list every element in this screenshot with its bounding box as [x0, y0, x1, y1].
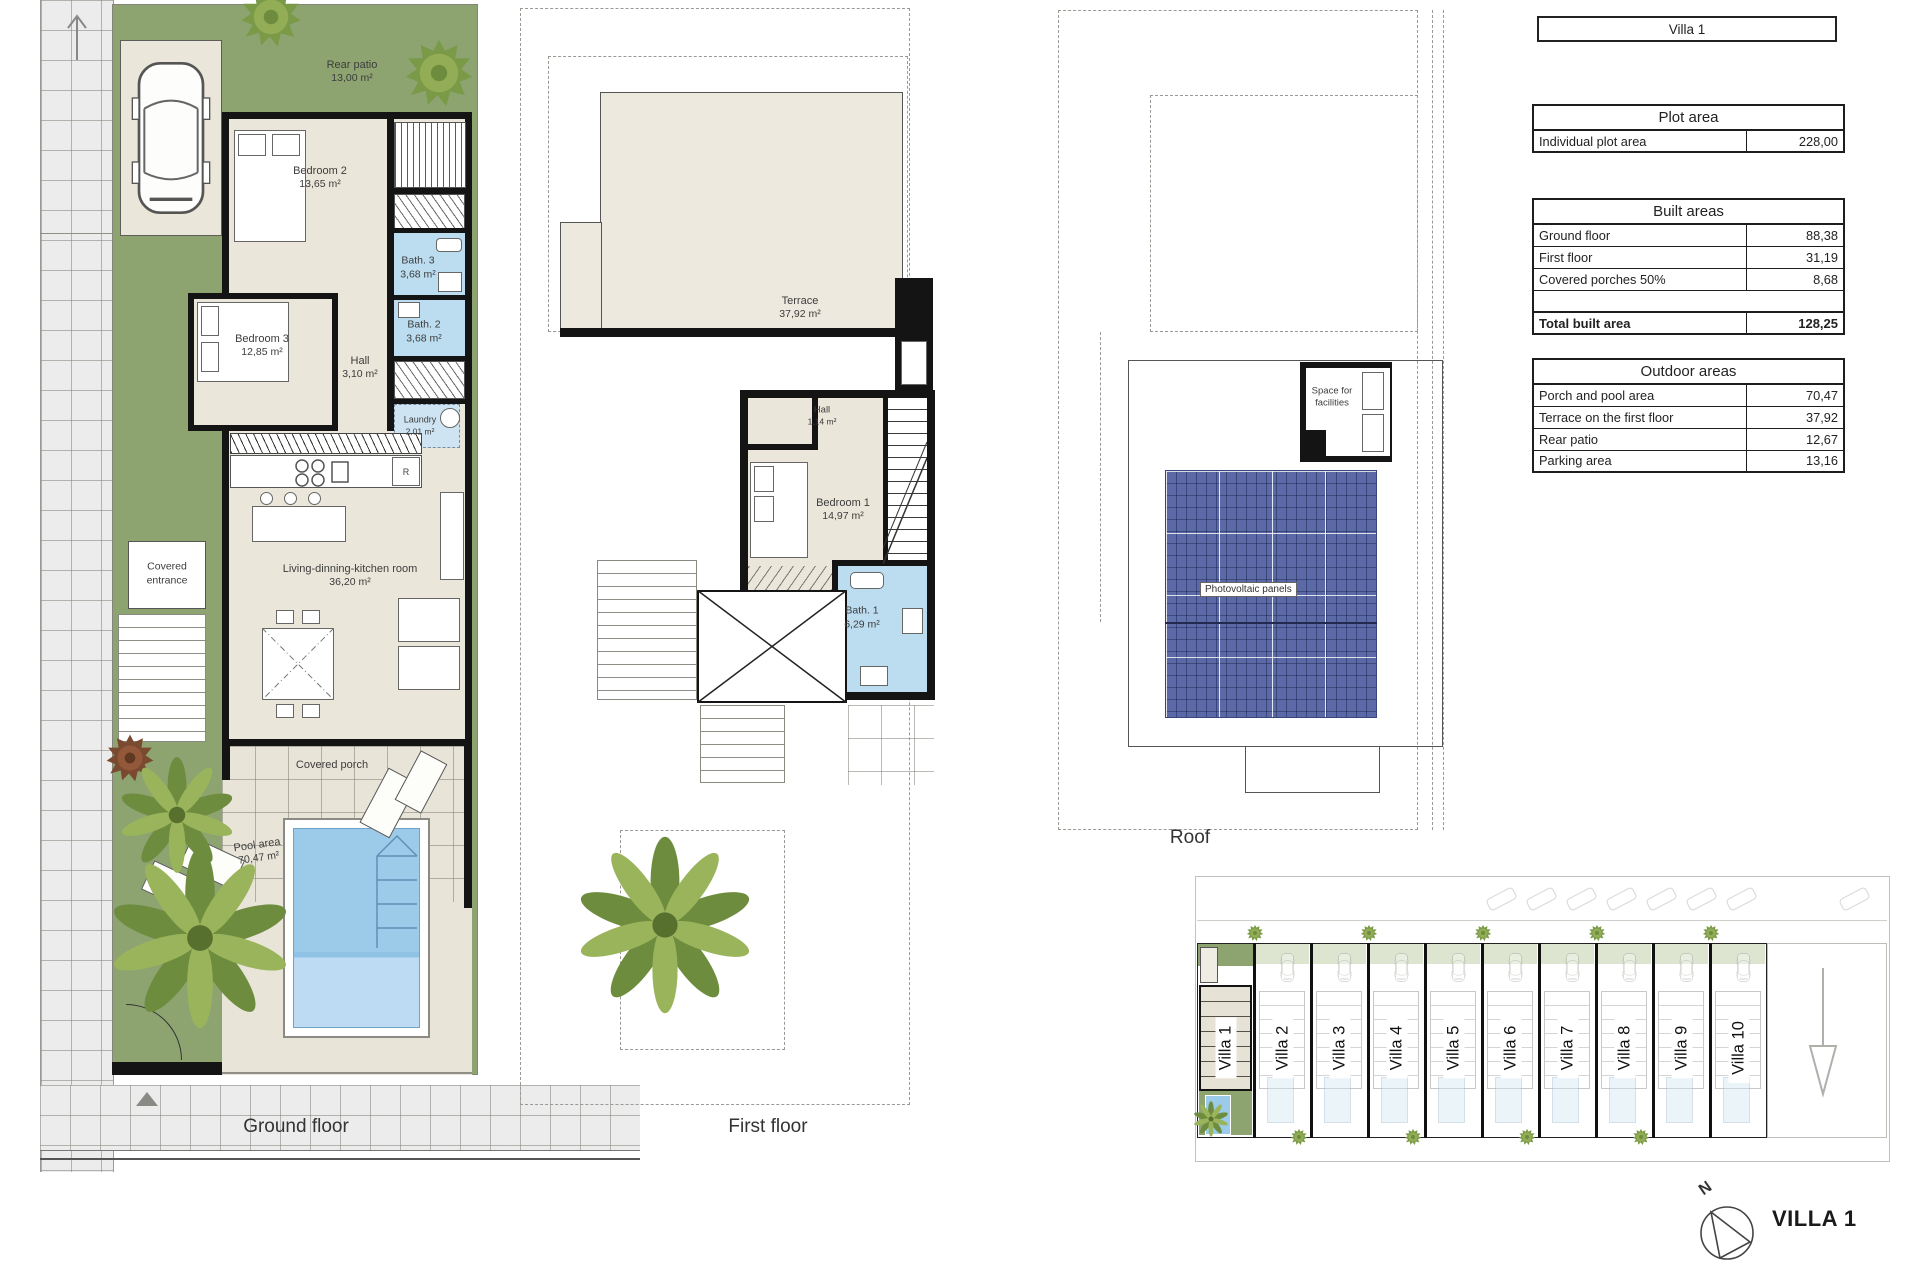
parked-car-outline — [1485, 886, 1518, 912]
row-label: Ground floor — [1533, 224, 1746, 246]
row-label: Parking area — [1533, 450, 1746, 472]
table-row-total: Total built area 128,25 — [1533, 312, 1844, 334]
room-label-laundry: Laundry 2,01 m² — [404, 415, 437, 438]
row-value: 13,16 — [1746, 450, 1844, 472]
car-icon — [1337, 951, 1352, 984]
parked-car-outline — [1725, 886, 1758, 912]
room-area: 1,14 m² — [808, 417, 837, 428]
mini-building — [1715, 991, 1761, 1089]
row-value: 12,67 — [1746, 428, 1844, 450]
bed-pillow — [201, 342, 219, 372]
room-area: 14,97 m² — [816, 510, 870, 524]
mini-pool — [1552, 1077, 1579, 1123]
mini-garden — [1654, 944, 1708, 964]
up-arrow-icon — [62, 10, 92, 64]
palm-tree-icon — [108, 846, 292, 1030]
room-label-bedroom2: Bedroom 2 13,65 m² — [293, 164, 347, 192]
car-icon — [131, 50, 211, 226]
room-name: Laundry — [404, 415, 437, 427]
mini-pool — [1324, 1077, 1351, 1123]
mini-garden — [1540, 944, 1594, 964]
room-name: Bedroom 1 — [816, 496, 870, 510]
site-top-line — [1197, 920, 1887, 921]
sheet-title: VILLA 1 — [1772, 1206, 1857, 1232]
bed-pillow — [754, 496, 774, 522]
row-label — [1533, 290, 1746, 312]
row-label: Porch and pool area — [1533, 384, 1746, 406]
wall — [394, 228, 466, 233]
palm-tree-icon — [575, 835, 755, 1015]
bidet — [860, 666, 888, 686]
site-villa-label: Villa 5 — [1443, 1018, 1464, 1079]
table-row: First floor 31,19 — [1533, 246, 1844, 268]
room-name-line2: facilities — [1312, 398, 1353, 410]
room-label-bath2: Bath. 2 3,68 m² — [406, 318, 442, 345]
deck-edge — [222, 1072, 472, 1074]
row-value: 70,47 — [1746, 384, 1844, 406]
row-value: 88,38 — [1746, 224, 1844, 246]
car-icon — [1280, 951, 1295, 984]
car-icon — [1394, 951, 1409, 984]
room-name-line2: entrance — [147, 574, 188, 588]
mini-pool — [1381, 1077, 1408, 1123]
row-value — [1746, 290, 1844, 312]
room-area: 6,29 m² — [844, 618, 880, 632]
site-villa-strip-5: Villa 5 — [1425, 943, 1482, 1138]
room-label-bath3: Bath. 3 3,68 m² — [400, 254, 436, 281]
caption-roof: Roof — [1170, 827, 1210, 849]
site-villa-strip-9: Villa 9 — [1653, 943, 1710, 1138]
room-area: 36,20 m² — [283, 576, 418, 590]
parked-car-outline — [1645, 886, 1678, 912]
site-villa-strip-1: Villa 1 — [1197, 943, 1254, 1138]
tree-icon — [1474, 924, 1492, 942]
street-line — [40, 1158, 640, 1160]
mini-pool — [1267, 1077, 1294, 1123]
site-villa-strip-10: Villa 10 — [1710, 943, 1767, 1138]
table-row: Covered porches 50% 8,68 — [1533, 268, 1844, 290]
sink — [850, 572, 884, 589]
car-icon — [1736, 951, 1751, 984]
parked-car-outline — [1525, 886, 1558, 912]
road-arrow-icon — [1808, 968, 1838, 1098]
built-areas-table: Built areas Ground floor 88,38 First flo… — [1532, 198, 1845, 335]
parked-car-outline — [1565, 886, 1598, 912]
table-row: Terrace on the first floor 37,92 — [1533, 406, 1844, 428]
room-name: Bedroom 2 — [293, 164, 347, 178]
row-value: 128,25 — [1746, 312, 1844, 334]
room-name-line1: Covered — [147, 560, 188, 574]
room-name: Hall — [808, 404, 837, 416]
room-name: Bedroom 3 — [235, 332, 289, 346]
site-villa-strip-7: Villa 7 — [1539, 943, 1596, 1138]
room-area: 13,65 m² — [293, 178, 347, 192]
wall — [394, 295, 466, 300]
v1-garden — [1198, 944, 1253, 966]
table-row: Rear patio 12,67 — [1533, 428, 1844, 450]
mini-building — [1316, 991, 1362, 1089]
strip-divider — [1367, 943, 1370, 1138]
site-boundary — [1195, 876, 1890, 1162]
bed-pillow — [272, 134, 300, 156]
room-label-bedroom3: Bedroom 3 12,85 m² — [235, 332, 289, 360]
strip-divider — [1595, 943, 1598, 1138]
parked-car-outline — [1838, 886, 1871, 912]
site-villa-strip-2: Villa 2 — [1254, 943, 1311, 1138]
tree-icon — [1290, 1128, 1308, 1146]
room-area: 3,68 m² — [406, 332, 442, 346]
table-row: Parking area 13,16 — [1533, 450, 1844, 472]
toilet — [438, 272, 462, 292]
strip-divider — [1424, 943, 1427, 1138]
room-area: 12,85 m² — [235, 346, 289, 360]
mini-building — [1658, 991, 1704, 1089]
site-villa-label: Villa 8 — [1614, 1018, 1635, 1079]
table-diagonals — [262, 628, 334, 700]
compass-icon — [1698, 1200, 1760, 1262]
first-floor-plan: Terrace 37,92 m² Hall 1,14 m² Bedroom 1 … — [500, 0, 950, 1180]
row-label: Rear patio — [1533, 428, 1746, 450]
site-villa-label: Villa 10 — [1728, 1013, 1749, 1083]
row-value: 31,19 — [1746, 246, 1844, 268]
wall — [394, 188, 466, 194]
wall — [394, 356, 466, 361]
chair — [276, 610, 294, 624]
car-icon — [1622, 951, 1637, 984]
room-label-facilities: Space for facilities — [1312, 386, 1353, 411]
facility-vent — [1362, 414, 1384, 452]
tree-icon — [1632, 1128, 1650, 1146]
pool-ladder-icon — [373, 830, 421, 950]
terrace-ext — [560, 222, 602, 335]
room-name: Bath. 2 — [406, 318, 442, 332]
table-row: Individual plot area 228,00 — [1533, 130, 1844, 152]
tree-icon — [1518, 1128, 1536, 1146]
strip-divider — [1652, 943, 1655, 1138]
mini-building — [1259, 991, 1305, 1089]
room-area: 3,10 m² — [342, 368, 378, 382]
tree-icon — [1404, 1128, 1422, 1146]
mini-building — [1544, 991, 1590, 1089]
mini-building — [1430, 991, 1476, 1089]
kitchen-shelf-hatch — [230, 433, 422, 454]
plot-area-title: Plot area — [1533, 105, 1844, 130]
wall — [394, 399, 466, 404]
car-icon — [1451, 951, 1466, 984]
entrance-triangle-icon — [136, 1092, 158, 1106]
mini-pool — [1438, 1077, 1465, 1123]
shower — [394, 361, 465, 399]
toilet — [902, 608, 923, 634]
outdoor-areas-title: Outdoor areas — [1533, 359, 1844, 384]
wardrobe — [394, 122, 466, 188]
row-label: Terrace on the first floor — [1533, 406, 1746, 428]
strip-divider — [1310, 943, 1313, 1138]
wall — [748, 444, 818, 450]
room-name: Bath. 1 — [844, 604, 880, 618]
car-icon — [1679, 951, 1694, 984]
porch-below — [848, 705, 934, 785]
mini-pool — [1666, 1077, 1693, 1123]
car-icon — [1565, 951, 1580, 984]
room-label-hall-gf: Hall 3,10 m² — [342, 354, 378, 382]
room-label-hall-ff: Hall 1,14 m² — [808, 404, 837, 427]
caption-ground-floor: Ground floor — [243, 1116, 349, 1138]
tree-icon — [1246, 924, 1264, 942]
roof-step-outline — [1245, 747, 1380, 793]
stool — [308, 492, 321, 505]
mini-garden — [1255, 944, 1309, 964]
palm-tree-icon — [1193, 1101, 1229, 1137]
bed-pillow — [201, 306, 219, 336]
shower — [394, 194, 465, 230]
mini-garden — [1369, 944, 1423, 964]
site-villa-label: Villa 3 — [1329, 1018, 1350, 1079]
chair — [302, 610, 320, 624]
exterior-steps — [597, 560, 697, 700]
fridge-letter: R — [403, 467, 410, 477]
room-name-line1: Space for — [1312, 386, 1353, 398]
site-villa-strip-3: Villa 3 — [1311, 943, 1368, 1138]
room-label-terrace: Terrace 37,92 m² — [779, 294, 820, 322]
bush-icon — [402, 36, 476, 110]
row-label: Total built area — [1533, 312, 1746, 334]
site-villa-strip-6: Villa 6 — [1482, 943, 1539, 1138]
room-label-rear-patio: Rear patio 13,00 m² — [327, 58, 378, 86]
pv-label-box: Photovoltaic panels — [1200, 582, 1297, 597]
wall — [464, 746, 472, 908]
room-name: Hall — [342, 354, 378, 368]
toilet — [398, 302, 420, 318]
sidewalk-left — [40, 0, 114, 1172]
row-value: 37,92 — [1746, 406, 1844, 428]
mini-garden — [1597, 944, 1651, 964]
plot-area-table: Plot area Individual plot area 228,00 — [1532, 104, 1845, 153]
site-villa-strip-8: Villa 8 — [1596, 943, 1653, 1138]
roof-inner-dashed — [1150, 95, 1418, 332]
site-band — [1197, 943, 1767, 1138]
room-area: 3,68 m² — [400, 268, 436, 282]
sofa — [398, 598, 460, 642]
mini-building — [1487, 991, 1533, 1089]
strip-divider — [1709, 943, 1712, 1138]
roof-plan: Space for facilities Photovoltaic panels… — [1040, 0, 1460, 900]
strip-divider — [1253, 943, 1256, 1138]
outdoor-areas-table: Outdoor areas Porch and pool area 70,47 … — [1532, 358, 1845, 473]
site-villa-label: Villa 2 — [1272, 1018, 1293, 1079]
parked-car-outline — [1605, 886, 1638, 912]
fridge: R — [392, 457, 420, 486]
chimney-appliance — [901, 341, 927, 385]
room-name: Living-dinning-kitchen room — [283, 562, 418, 576]
room-area: 13,00 m² — [327, 72, 378, 86]
mini-building — [1373, 991, 1419, 1089]
stair-cut-line — [883, 398, 927, 564]
tree-icon — [1360, 924, 1378, 942]
row-value: 228,00 — [1746, 130, 1844, 152]
site-villa-label: Villa 6 — [1500, 1018, 1521, 1079]
room-label-bath1: Bath. 1 6,29 m² — [844, 604, 880, 631]
room-name: Rear patio — [327, 58, 378, 72]
room-label-covered-porch: Covered porch — [296, 758, 368, 772]
row-label: Individual plot area — [1533, 130, 1746, 152]
row-label: First floor — [1533, 246, 1746, 268]
wall — [560, 328, 905, 337]
v1-building — [1199, 985, 1252, 1091]
stool — [260, 492, 273, 505]
facility-vent — [1362, 372, 1384, 410]
room-label-covered-entrance: Covered entrance — [147, 560, 188, 587]
chair — [302, 704, 320, 718]
wall — [112, 1062, 222, 1075]
row-label: Covered porches 50% — [1533, 268, 1746, 290]
v1-pool — [1205, 1095, 1231, 1135]
site-villa-label: Villa 1 — [1215, 1018, 1236, 1079]
mini-garden — [1711, 944, 1765, 964]
bush-icon — [238, 0, 304, 50]
villa-title-box-label: Villa 1 — [1669, 22, 1706, 37]
north-letter: N — [1696, 1178, 1716, 1199]
room-name: Bath. 3 — [400, 254, 436, 268]
site-villa-label: Villa 7 — [1557, 1018, 1578, 1079]
v1-deck — [1199, 1091, 1252, 1135]
table-row-blank — [1533, 290, 1844, 312]
stove-hobs-icon — [288, 456, 352, 488]
mini-pool — [1723, 1077, 1750, 1123]
site-villa-strip-4: Villa 4 — [1368, 943, 1425, 1138]
kitchen-island — [252, 506, 346, 542]
terrace — [600, 92, 903, 335]
void-x-lines — [697, 590, 847, 703]
pv-label: Photovoltaic panels — [1205, 584, 1292, 595]
v1-parking — [1200, 947, 1218, 983]
steps-below — [700, 705, 785, 783]
sofa — [398, 646, 460, 690]
caption-first-floor: First floor — [728, 1116, 807, 1138]
road — [1767, 943, 1887, 1138]
bed-pillow — [754, 466, 774, 492]
tree-icon — [1702, 924, 1720, 942]
sink — [436, 238, 462, 252]
room-label-bedroom1: Bedroom 1 14,97 m² — [816, 496, 870, 524]
wall — [1300, 430, 1326, 462]
site-villa-label: Villa 9 — [1671, 1018, 1692, 1079]
bed-pillow — [238, 134, 266, 156]
room-area: 2,01 m² — [404, 426, 437, 437]
strip-divider — [1481, 943, 1484, 1138]
roof-dash-vertical — [1100, 332, 1101, 622]
stool — [284, 492, 297, 505]
car-icon — [1508, 951, 1523, 984]
chair — [276, 704, 294, 718]
strip-divider — [1538, 943, 1541, 1138]
room-label-living: Living-dinning-kitchen room 36,20 m² — [283, 562, 418, 590]
room-area: 37,92 m² — [779, 308, 820, 322]
pool — [283, 818, 430, 1038]
wall — [387, 119, 394, 431]
villa-title-box: Villa 1 — [1537, 16, 1837, 42]
mini-garden — [1312, 944, 1366, 964]
mini-garden — [1426, 944, 1480, 964]
mini-building — [1601, 991, 1647, 1089]
table-row: Ground floor 88,38 — [1533, 224, 1844, 246]
mini-pool — [1495, 1077, 1522, 1123]
entrance-steps — [118, 614, 206, 742]
room-name: Terrace — [779, 294, 820, 308]
built-areas-title: Built areas — [1533, 199, 1844, 224]
washing-machine — [440, 408, 460, 428]
row-value: 8,68 — [1746, 268, 1844, 290]
sidewalk-divider-line — [40, 233, 114, 234]
mini-pool — [1609, 1077, 1636, 1123]
site-villa-label: Villa 4 — [1386, 1018, 1407, 1079]
room-name: Covered porch — [296, 758, 368, 772]
tree-icon — [1588, 924, 1606, 942]
tv-bench — [440, 492, 464, 580]
parked-car-outline — [1685, 886, 1718, 912]
table-row: Porch and pool area 70,47 — [1533, 384, 1844, 406]
pv-mid-line — [1165, 622, 1377, 624]
mini-garden — [1483, 944, 1537, 964]
